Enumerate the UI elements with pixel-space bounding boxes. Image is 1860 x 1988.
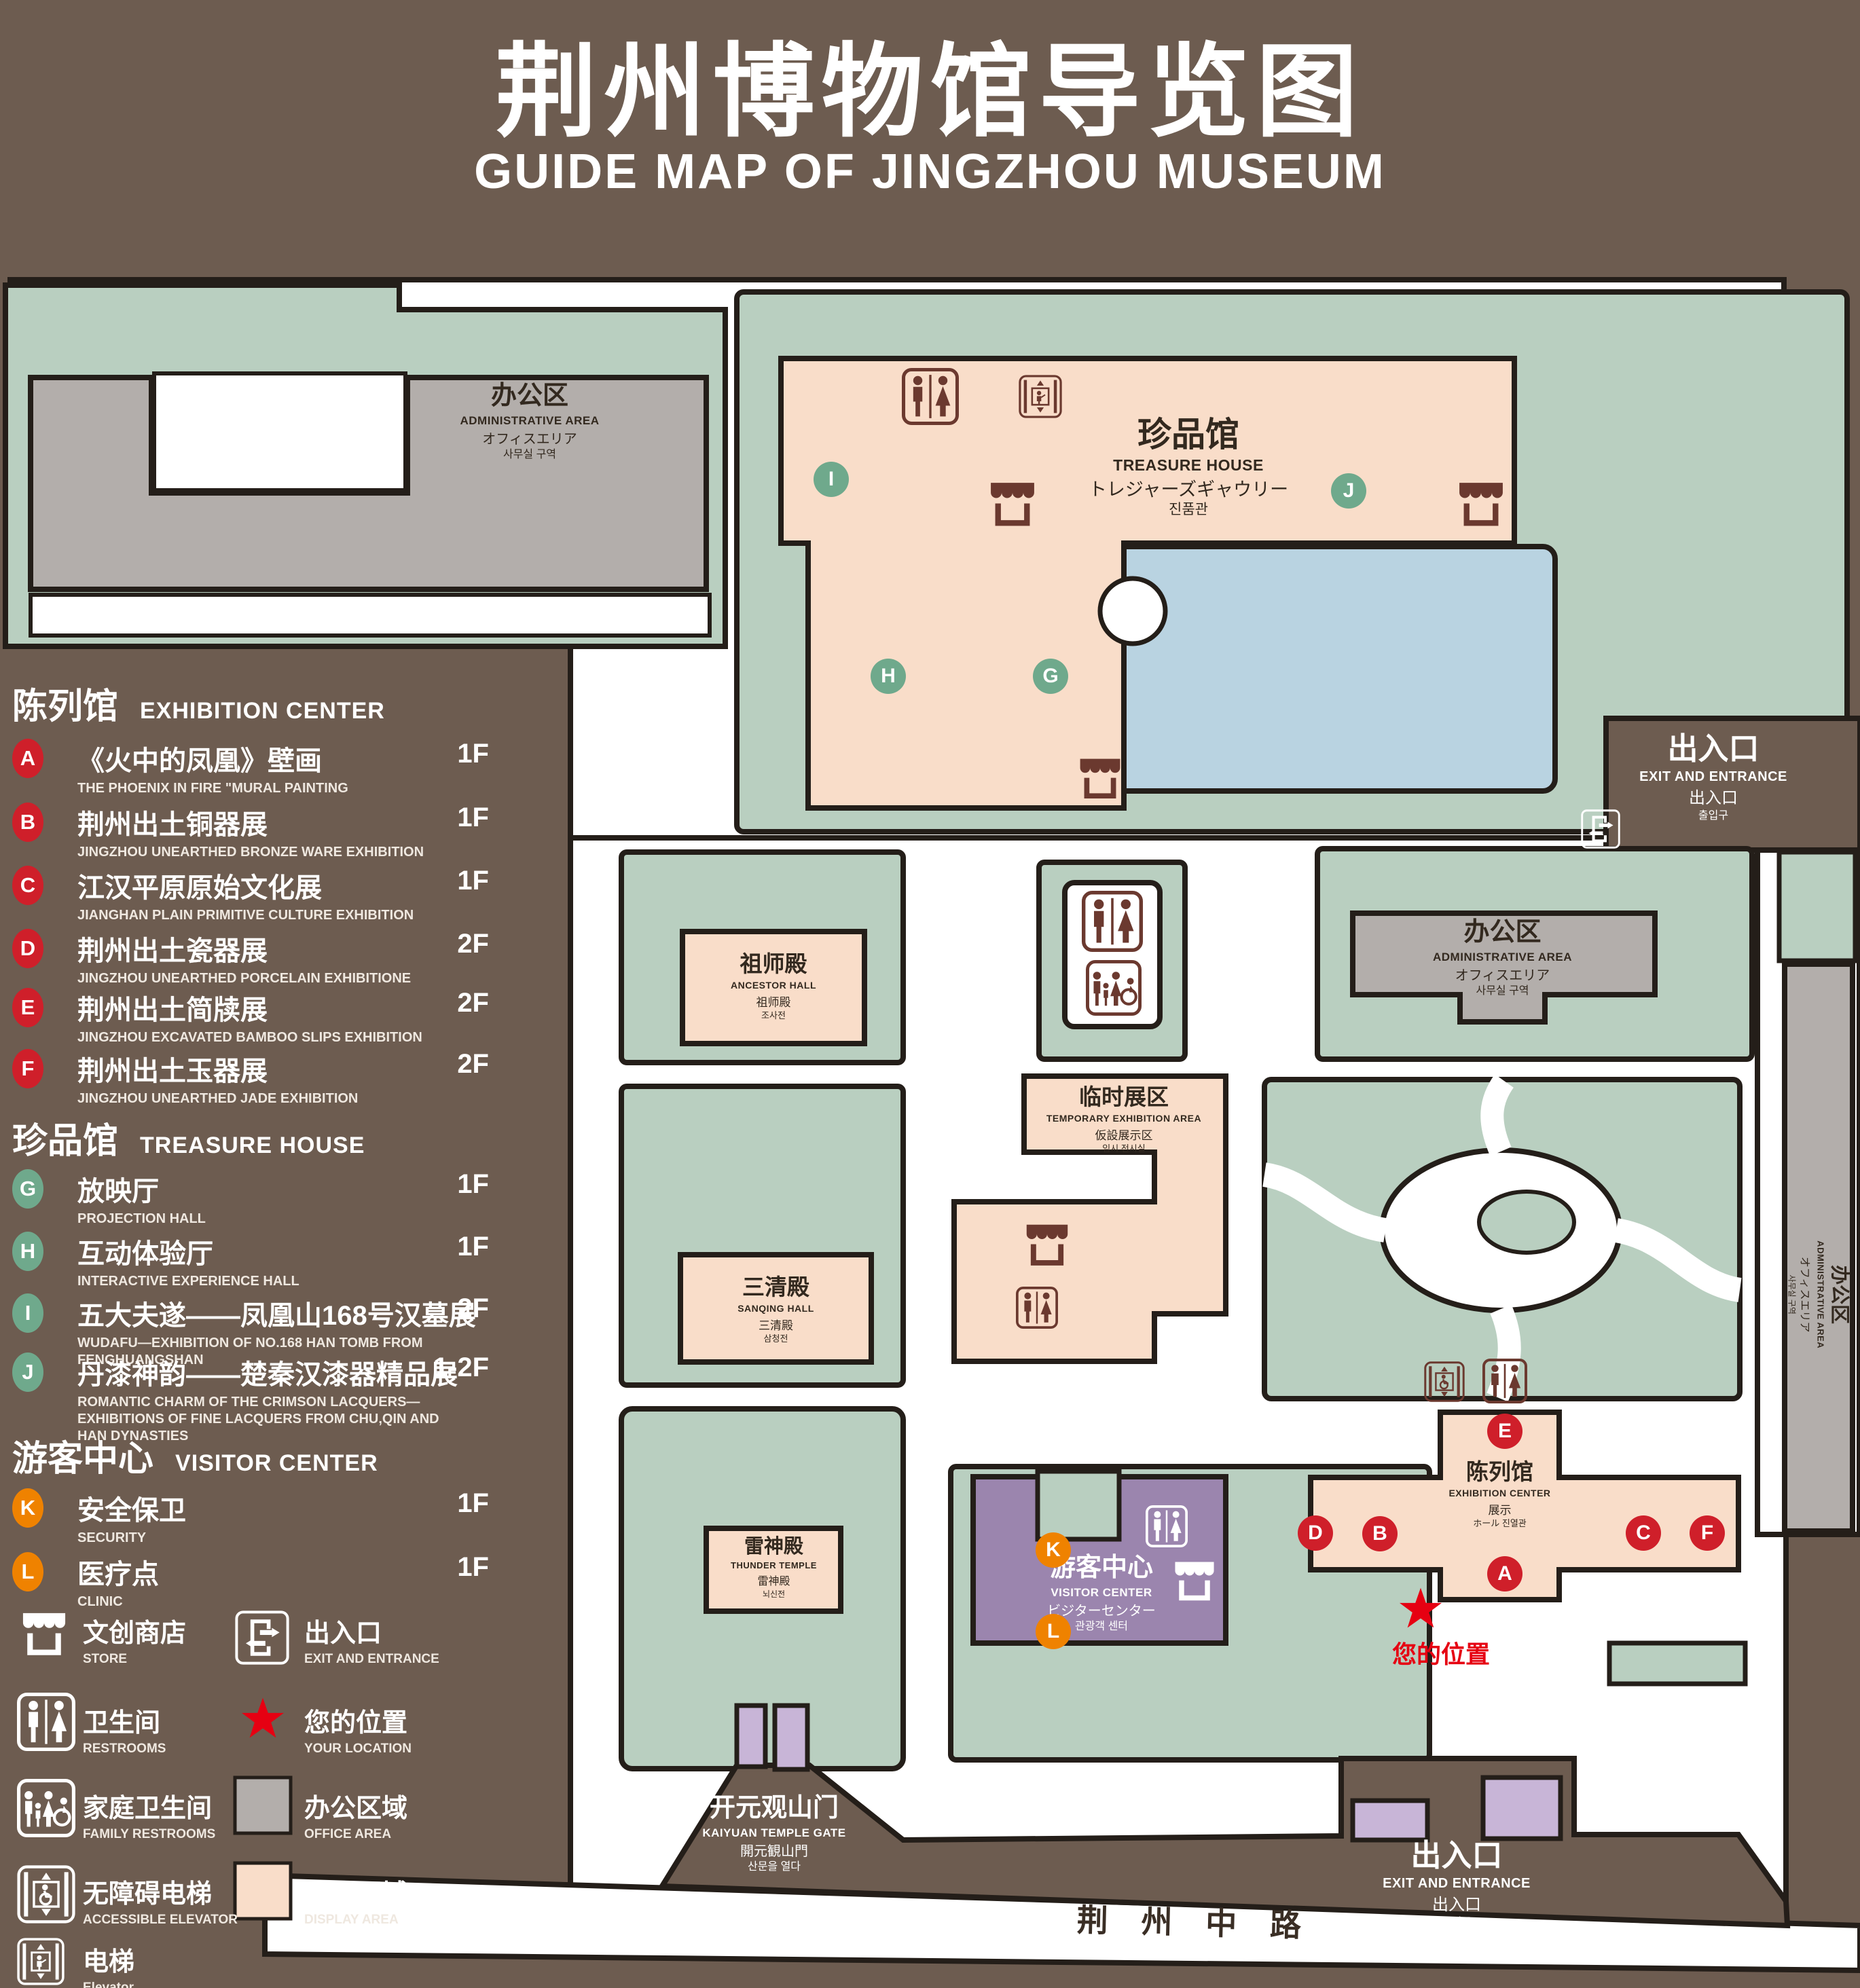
office-area-swatch	[235, 1778, 291, 1833]
park-island-lawn	[1479, 1192, 1574, 1253]
admin-right-label: 办公区 ADMINISTRATIVE AREA オフィスエリア 사무실 구역	[1351, 918, 1654, 997]
family-restrooms-icon	[19, 1781, 74, 1836]
legend-symbol-family-restrooms: 家庭卫生间FAMILY RESTROOMS	[83, 1787, 215, 1842]
legend-symbol-accessible-elevator: 无障碍电梯ACCESSIBLE ELEVATOR	[83, 1873, 238, 1928]
legend-item-D: D 荆州出土瓷器展JINGZHOU UNEARTHED PORCELAIN EX…	[12, 929, 489, 987]
bottom-exit-block-left	[1353, 1801, 1427, 1840]
marker-D: D	[1298, 1515, 1333, 1551]
restrooms-icon	[19, 1695, 74, 1750]
your-location-star	[242, 1698, 284, 1738]
exit-top-right-label: 出入口 EXIT AND ENTRANCE 出入口 출입구	[1608, 732, 1819, 822]
legend-item-H: H 互动体验厅INTERACTIVE EXPERIENCE HALL 1F	[12, 1232, 489, 1290]
marker-E: E	[1487, 1414, 1522, 1449]
legend-section-treasure-house: 珍品馆TREASURE HOUSE	[12, 1112, 365, 1163]
ancestor-hall-label: 祖师殿 ANCESTOR HALL 祖师殿 조사전	[689, 952, 858, 1020]
legend-item-B: B 荆州出土铜器展JINGZHOU UNEARTHED BRONZE WARE …	[12, 803, 489, 861]
gate-pillar-left	[737, 1706, 765, 1767]
legend-item-C: C 江汉平原原始文化展JIANGHAN PLAIN PRIMITIVE CULT…	[12, 866, 489, 924]
marker-I: I	[814, 462, 849, 497]
admin-courtyard	[154, 373, 405, 490]
your-location-label: 您的位置	[1360, 1635, 1522, 1670]
legend-section-visitor-center: 游客中心VISITOR CENTER	[12, 1430, 378, 1481]
legend-symbol-office-area: 办公区域OFFICE AREA	[304, 1787, 407, 1842]
accessible-elevator-icon	[19, 1867, 74, 1922]
legend-symbol-your-location: 您的位置YOUR LOCATION	[304, 1701, 412, 1756]
legend-item-L: L 医疗点CLINIC 1F	[12, 1552, 489, 1610]
display-area-swatch	[235, 1863, 291, 1919]
marker-G: G	[1033, 659, 1068, 694]
treasure-house-label: 珍品馆 TREASURE HOUSE トレジャーズギャウリー 진품관	[1012, 416, 1365, 518]
marker-K: K	[1036, 1532, 1071, 1568]
lawn-right-edge	[1779, 852, 1855, 961]
marker-J: J	[1331, 473, 1366, 509]
path-strip-top-left	[31, 595, 710, 636]
legend-symbol-exit: 出入口EXIT AND ENTRANCE	[304, 1612, 439, 1667]
legend-item-K: K 安全保卫SECURITY 1F	[12, 1488, 489, 1547]
marker-L: L	[1036, 1614, 1071, 1649]
legend-item-G: G 放映厅PROJECTION HALL 1F	[12, 1169, 489, 1228]
bottom-exit-block-right	[1483, 1778, 1561, 1839]
admin-top-left-label: 办公区 ADMINISTRATIVE AREA オフィスエリア 사무실 구역	[377, 382, 682, 461]
guide-map-poster: 荆州博物馆导览图 GUIDE MAP OF JINGZHOU MUSEUM	[0, 0, 1860, 1988]
marker-H: H	[871, 659, 906, 694]
park-path-north	[1492, 1081, 1504, 1152]
pond-bridge-arch	[1100, 578, 1165, 644]
admin-right-strip-label: 办公区 ADMINISTRATIVE AREA オフィスエリア 사무실 구역	[1787, 1200, 1850, 1390]
legend-symbol-store: 文创商店STORE	[83, 1612, 186, 1667]
legend-item-A: A 《火中的凤凰》壁画THE PHOENIX IN FIRE "MURAL PA…	[12, 739, 489, 797]
marker-A: A	[1487, 1556, 1522, 1591]
legend-symbol-elevator: 电梯Elevator	[83, 1940, 134, 1988]
gate-pillar-right	[775, 1706, 807, 1769]
visitor-center-lawn-notch	[1038, 1471, 1119, 1539]
legend-section-exhibition-center: 陈列馆EXHIBITION CENTER	[12, 678, 385, 729]
exhibition-center-label: 陈列馆 EXHIBITION CENTER 展示 ホール 진열관	[1417, 1460, 1583, 1528]
kaiyuan-gate-label: 开元观山门 KAIYUAN TEMPLE GATE 開元観山門 산문을 열다	[679, 1794, 869, 1873]
accessible-elevator-icon	[1425, 1363, 1463, 1401]
visitor-center-label: 游客中心 VISITOR CENTER ビジターセンター 관광객 센터	[993, 1553, 1210, 1633]
exit-icon	[236, 1612, 287, 1663]
legend-item-F: F 荆州出土玉器展JINGZHOU UNEARTHED JADE EXHIBIT…	[12, 1049, 489, 1107]
park-path-south	[1497, 1309, 1510, 1397]
legend-item-E: E 荆州出土简牍展JINGZHOU EXCAVATED BAMBOO SLIPS…	[12, 988, 489, 1046]
sanqing-hall-label: 三清殿 SANQING HALL 三清殿 삼청전	[689, 1275, 862, 1344]
elevator-icon	[1020, 376, 1061, 417]
legend-symbol-display-area: 展示区域DISPLAY AREA	[304, 1873, 407, 1928]
lawn-exhibition-se	[1609, 1643, 1745, 1684]
thunder-temple-label: 雷神殿 THUNDER TEMPLE 雷神殿 뇌신전	[687, 1536, 860, 1599]
marker-F: F	[1690, 1515, 1725, 1551]
marker-B: B	[1362, 1516, 1398, 1551]
marker-C: C	[1626, 1515, 1661, 1551]
elevator-icon	[18, 1939, 63, 1984]
store-icon	[23, 1613, 65, 1653]
temporary-exhibition-label: 临时展区 TEMPORARY EXHIBITION AREA 仮設展示区 임시 …	[1019, 1085, 1229, 1154]
legend-symbol-restrooms: 卫生间RESTROOMS	[83, 1701, 166, 1756]
